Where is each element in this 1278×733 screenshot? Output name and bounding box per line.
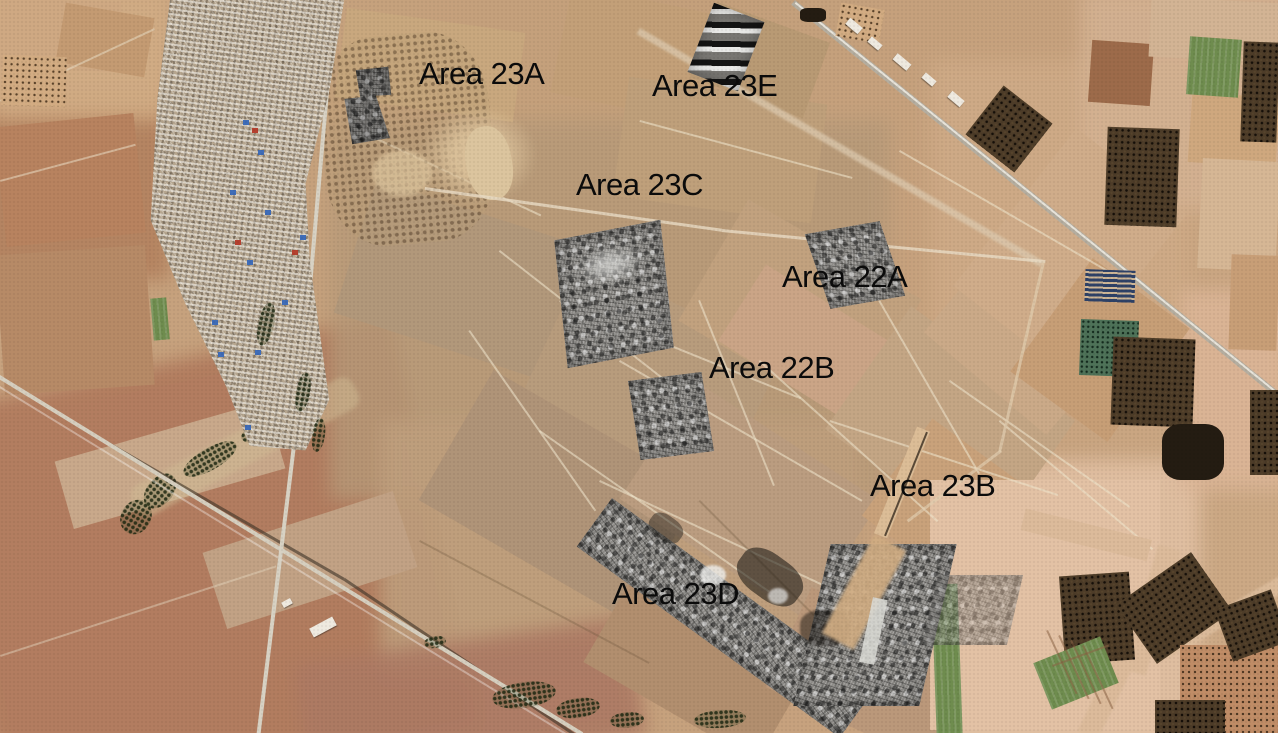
area-label-23a: Area 23A bbox=[419, 58, 544, 89]
blue-roof-building bbox=[255, 350, 261, 355]
blue-roof-building bbox=[245, 425, 251, 430]
blue-roof-building bbox=[218, 352, 224, 357]
blue-roof-building bbox=[300, 235, 306, 240]
geophysics-light-anomaly bbox=[768, 588, 788, 604]
blue-roof-building bbox=[258, 150, 264, 155]
field-patch bbox=[1228, 254, 1278, 351]
geophysics-patch-23c bbox=[554, 220, 673, 368]
area-label-23d: Area 23D bbox=[612, 578, 739, 609]
area-label-22b: Area 22B bbox=[709, 352, 834, 383]
solar-panels bbox=[1084, 269, 1135, 303]
blue-roof-building bbox=[247, 260, 253, 265]
dark-grove bbox=[1162, 424, 1224, 480]
orchard-field bbox=[1250, 390, 1278, 475]
geophysics-patch-22b bbox=[628, 372, 714, 460]
orchard-field bbox=[1104, 127, 1179, 227]
field-patch bbox=[1088, 40, 1154, 106]
orchard-field bbox=[1155, 700, 1225, 733]
orchard-field bbox=[1, 55, 67, 107]
geophysics-patch-23d-extension bbox=[922, 575, 1023, 645]
blue-roof-building bbox=[230, 190, 236, 195]
building bbox=[867, 36, 882, 50]
field-patch bbox=[0, 113, 146, 247]
field-patch bbox=[0, 245, 155, 395]
red-roof-building bbox=[235, 240, 241, 245]
blue-roof-building bbox=[282, 300, 288, 305]
satellite-map: Area 23A Area 23E Area 23C Area 22A Area… bbox=[0, 0, 1278, 733]
area-label-22a: Area 22A bbox=[782, 261, 907, 292]
orchard-field bbox=[835, 2, 884, 43]
area-label-23c: Area 23C bbox=[576, 169, 703, 200]
blue-roof-building bbox=[212, 320, 218, 325]
orchard-field bbox=[1240, 41, 1278, 142]
red-roof-building bbox=[292, 250, 298, 255]
orchard-field bbox=[1110, 337, 1195, 428]
green-field bbox=[1186, 36, 1242, 97]
blue-roof-building bbox=[243, 120, 249, 125]
blue-roof-building bbox=[265, 210, 271, 215]
building bbox=[893, 53, 912, 71]
area-label-23e: Area 23E bbox=[652, 70, 777, 101]
green-field bbox=[150, 297, 170, 340]
area-label-23b: Area 23B bbox=[870, 470, 995, 501]
dark-grove bbox=[800, 8, 826, 22]
red-roof-building bbox=[252, 128, 258, 133]
pale-mound bbox=[372, 150, 432, 196]
